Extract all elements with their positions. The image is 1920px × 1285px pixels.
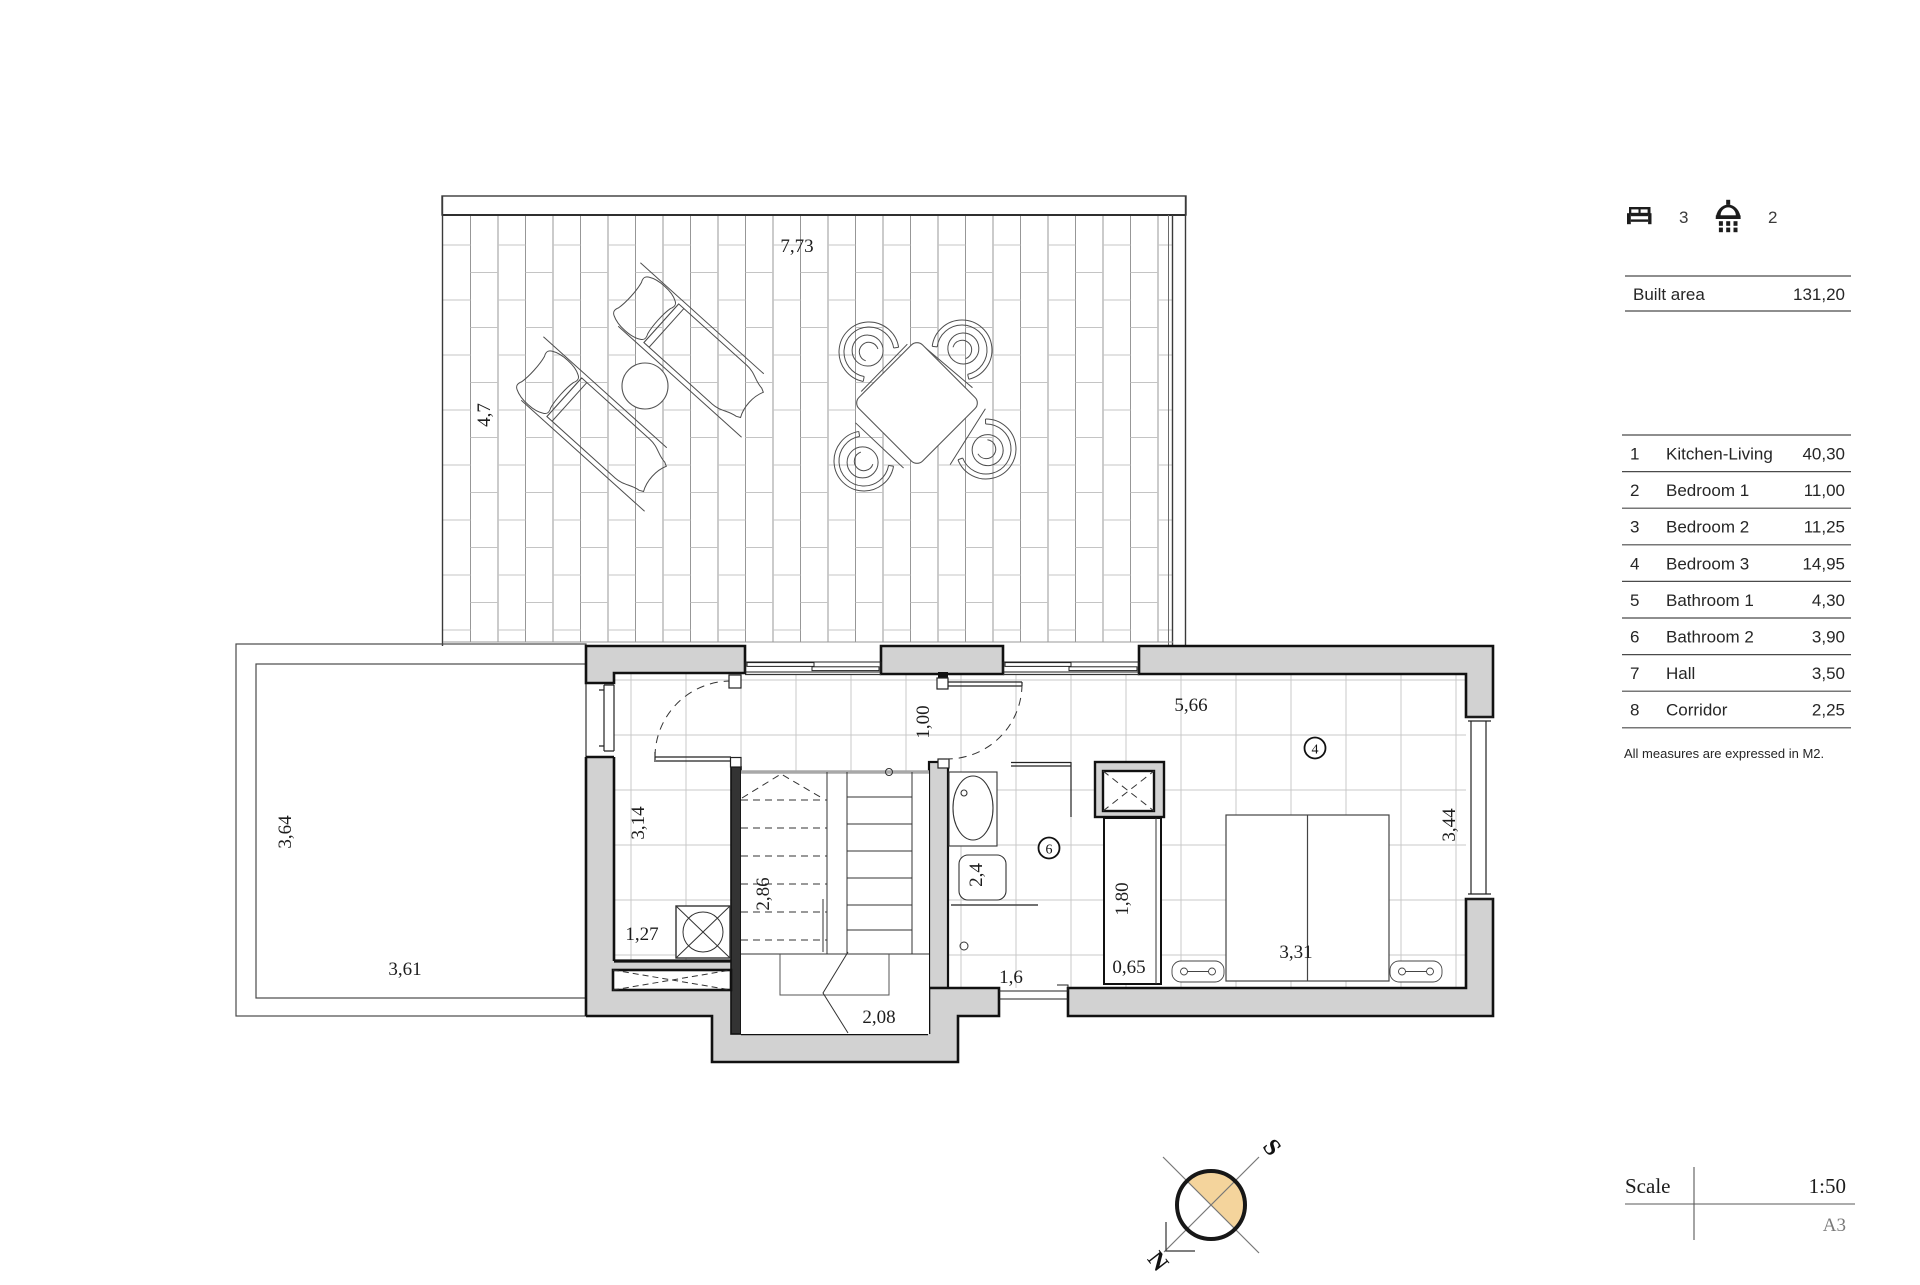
svg-text:Kitchen-Living: Kitchen-Living <box>1666 445 1773 464</box>
svg-text:3,61: 3,61 <box>388 959 421 980</box>
svg-text:2,86: 2,86 <box>753 877 774 910</box>
svg-text:8: 8 <box>1630 701 1639 720</box>
svg-text:1,80: 1,80 <box>1112 882 1133 915</box>
svg-text:2,4: 2,4 <box>966 863 987 887</box>
svg-text:1:50: 1:50 <box>1809 1174 1846 1198</box>
svg-text:Bathroom 2: Bathroom 2 <box>1666 628 1754 647</box>
svg-text:1: 1 <box>1630 445 1639 464</box>
svg-text:3,64: 3,64 <box>275 815 296 849</box>
svg-text:2,25: 2,25 <box>1812 701 1845 720</box>
svg-text:All measures are expressed in: All measures are expressed in M2. <box>1624 746 1824 761</box>
svg-text:A3: A3 <box>1823 1215 1846 1236</box>
svg-text:Bedroom 2: Bedroom 2 <box>1666 518 1749 537</box>
svg-text:4,7: 4,7 <box>474 403 495 427</box>
svg-text:2,08: 2,08 <box>862 1007 895 1028</box>
svg-text:0,65: 0,65 <box>1112 957 1145 978</box>
svg-text:Corridor: Corridor <box>1666 701 1728 720</box>
svg-text:3,50: 3,50 <box>1812 664 1845 683</box>
svg-text:3,31: 3,31 <box>1279 942 1312 963</box>
svg-text:6: 6 <box>1630 628 1639 647</box>
svg-text:3: 3 <box>1679 208 1688 227</box>
svg-text:Bedroom 1: Bedroom 1 <box>1666 481 1749 500</box>
svg-text:1,27: 1,27 <box>625 924 658 945</box>
svg-text:Hall: Hall <box>1666 664 1695 683</box>
svg-text:Built area: Built area <box>1633 285 1705 304</box>
svg-text:11,25: 11,25 <box>1804 518 1845 537</box>
svg-text:2: 2 <box>1630 481 1639 500</box>
svg-text:Scale: Scale <box>1625 1174 1670 1198</box>
svg-text:40,30: 40,30 <box>1802 445 1845 464</box>
svg-text:2: 2 <box>1768 208 1777 227</box>
svg-text:11,00: 11,00 <box>1804 481 1845 500</box>
svg-text:131,20: 131,20 <box>1793 285 1845 304</box>
svg-text:14,95: 14,95 <box>1802 554 1845 573</box>
svg-text:3: 3 <box>1630 518 1639 537</box>
svg-text:4: 4 <box>1312 743 1319 758</box>
svg-text:3,90: 3,90 <box>1812 628 1845 647</box>
svg-text:4: 4 <box>1630 554 1639 573</box>
svg-text:5,66: 5,66 <box>1174 695 1207 716</box>
svg-text:Bathroom 1: Bathroom 1 <box>1666 591 1754 610</box>
svg-text:Bedroom 3: Bedroom 3 <box>1666 554 1749 573</box>
svg-text:6: 6 <box>1046 843 1053 858</box>
svg-text:1,00: 1,00 <box>913 705 934 738</box>
svg-text:4,30: 4,30 <box>1812 591 1845 610</box>
svg-text:5: 5 <box>1630 591 1639 610</box>
svg-text:7,73: 7,73 <box>780 236 813 257</box>
svg-text:1,6: 1,6 <box>999 967 1023 988</box>
svg-text:3,44: 3,44 <box>1439 808 1460 842</box>
svg-text:3,14: 3,14 <box>628 806 649 840</box>
svg-text:7: 7 <box>1630 664 1639 683</box>
